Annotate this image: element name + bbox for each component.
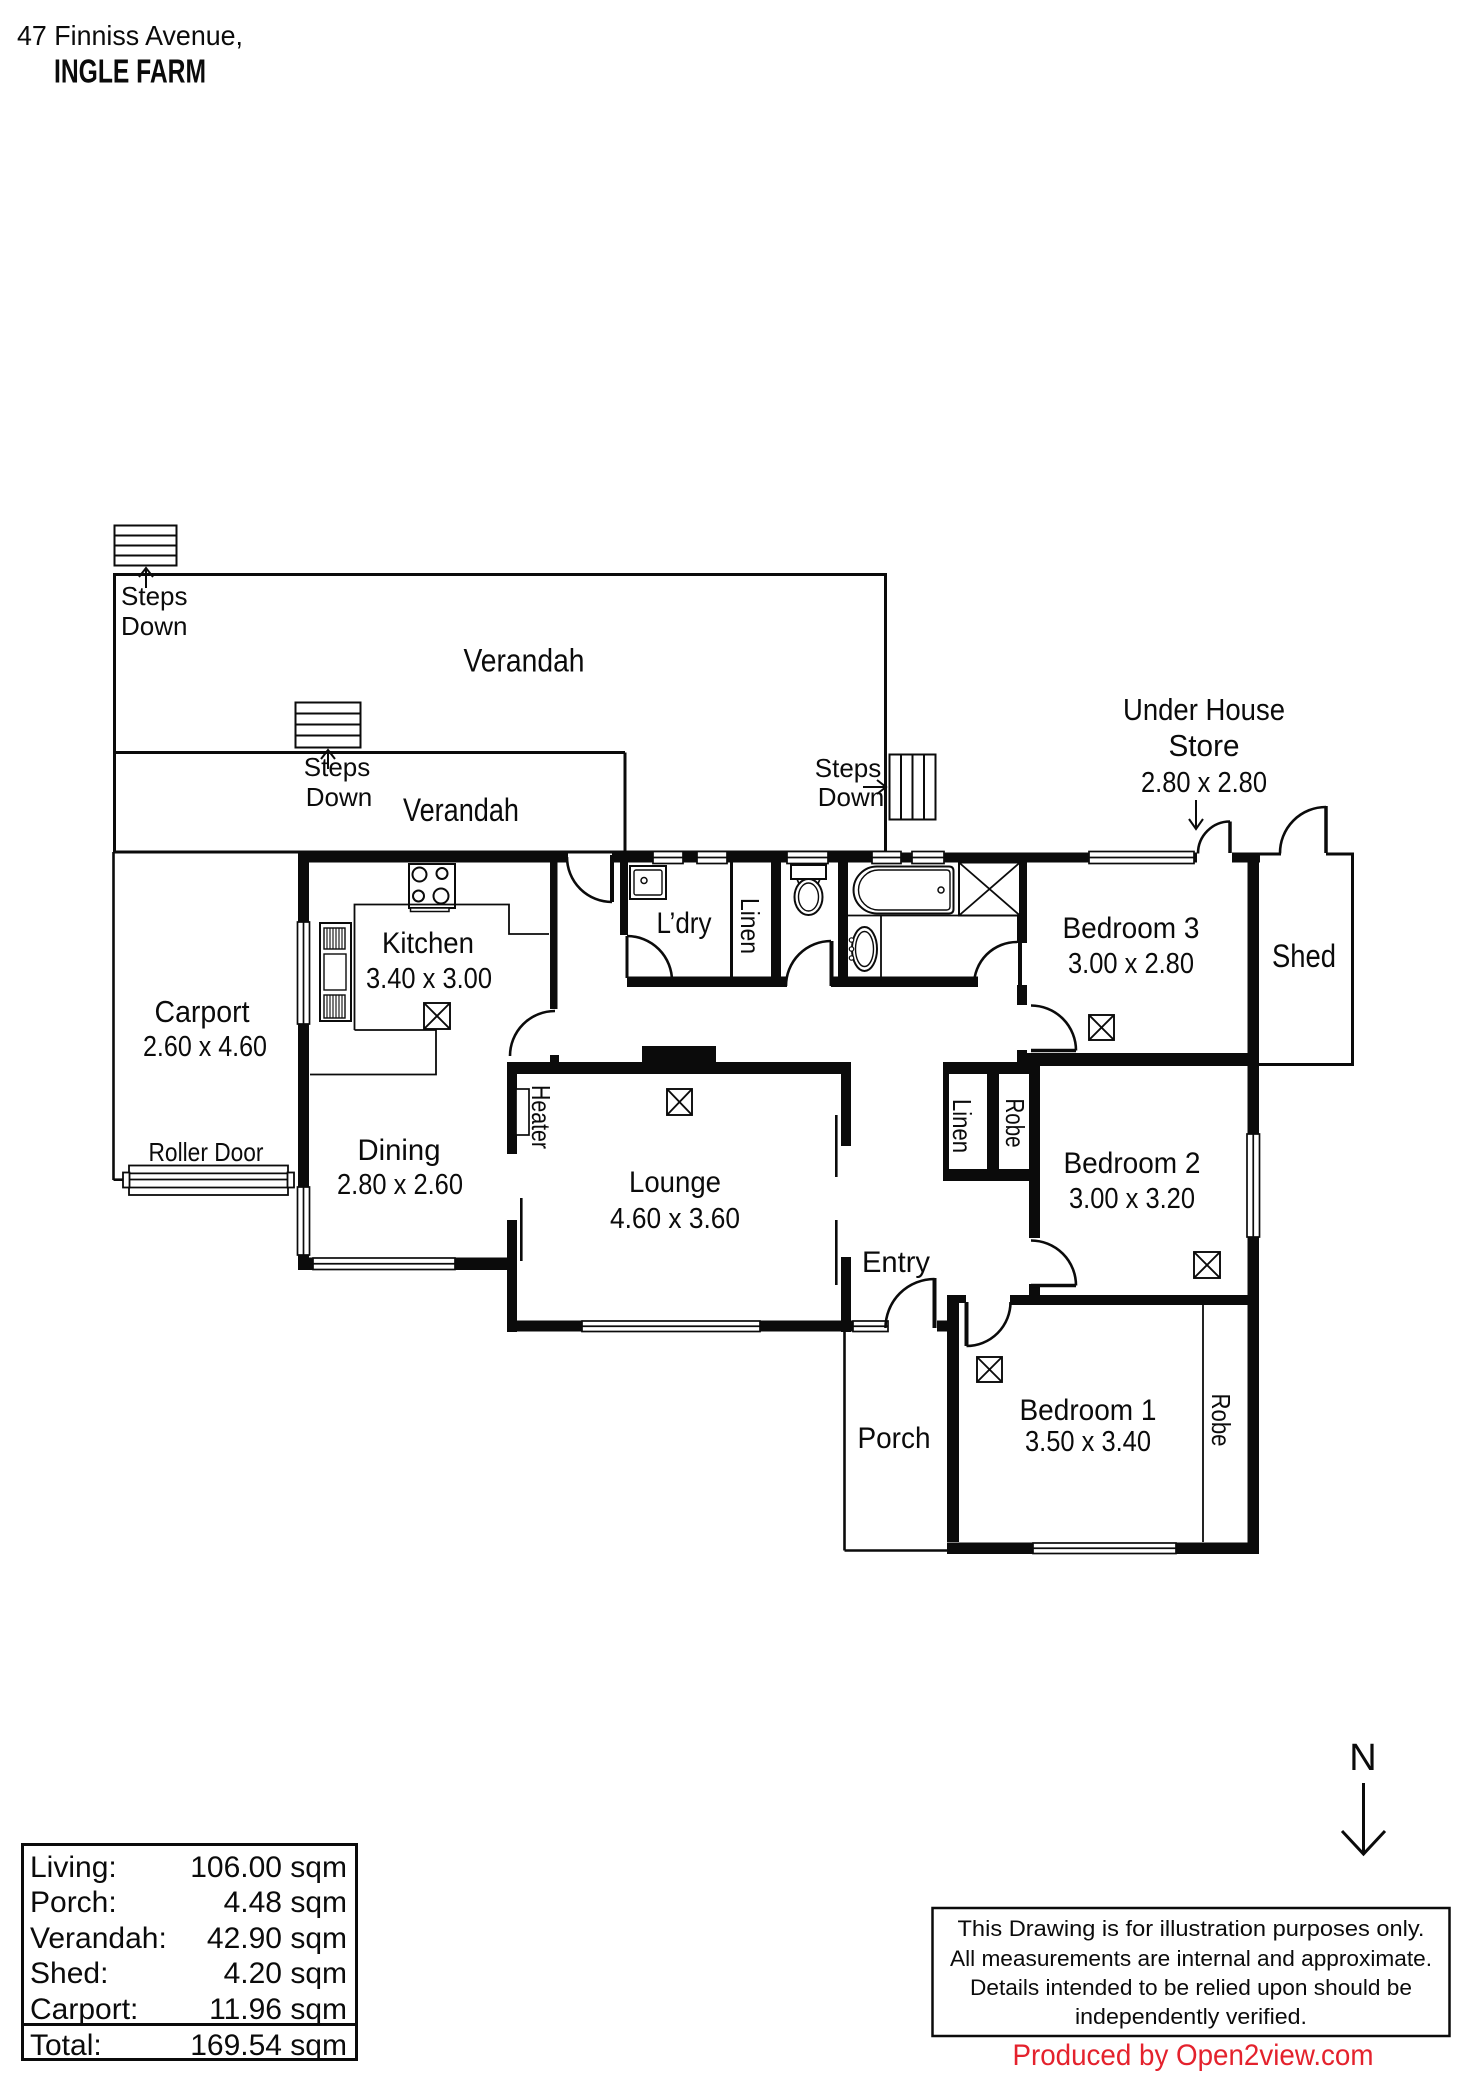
svg-text:Verandah: Verandah xyxy=(464,643,585,679)
svg-text:N: N xyxy=(1349,1737,1376,1779)
svg-text:Bedroom 1: Bedroom 1 xyxy=(1020,1394,1157,1427)
svg-text:Kitchen: Kitchen xyxy=(382,927,474,960)
svg-text:Down: Down xyxy=(306,782,372,812)
svg-text:Porch:: Porch: xyxy=(30,1886,117,1919)
svg-text:Bedroom 3: Bedroom 3 xyxy=(1063,912,1200,945)
svg-text:Details intended to be relied: Details intended to be relied upon shoul… xyxy=(970,1975,1412,2000)
svg-text:Bedroom 2: Bedroom 2 xyxy=(1064,1147,1201,1180)
svg-text:2.80 x 2.80: 2.80 x 2.80 xyxy=(1141,767,1267,799)
svg-text:106.00 sqm: 106.00 sqm xyxy=(190,1851,347,1884)
svg-text:independently verified.: independently verified. xyxy=(1075,2004,1307,2029)
svg-text:4.60 x 3.60: 4.60 x 3.60 xyxy=(610,1203,740,1235)
svg-text:169.54 sqm: 169.54 sqm xyxy=(190,2029,347,2062)
svg-text:42.90 sqm: 42.90 sqm xyxy=(207,1922,347,1955)
svg-text:This Drawing is for illustrati: This Drawing is for illustration purpose… xyxy=(958,1916,1425,1941)
svg-text:Down: Down xyxy=(121,611,187,641)
svg-text:Dining: Dining xyxy=(358,1134,441,1167)
svg-text:Linen: Linen xyxy=(735,898,765,954)
svg-text:Steps: Steps xyxy=(815,753,882,783)
svg-text:Under House: Under House xyxy=(1123,692,1285,727)
svg-text:3.40 x 3.00: 3.40 x 3.00 xyxy=(366,963,492,995)
svg-text:Steps: Steps xyxy=(121,581,188,611)
svg-text:Robe: Robe xyxy=(1000,1099,1030,1148)
svg-text:All measurements are internal: All measurements are internal and approx… xyxy=(950,1946,1432,1971)
svg-text:2.80 x 2.60: 2.80 x 2.60 xyxy=(337,1169,463,1201)
svg-text:4.48 sqm: 4.48 sqm xyxy=(224,1886,347,1919)
svg-text:Entry: Entry xyxy=(862,1246,930,1279)
svg-text:Steps: Steps xyxy=(304,752,371,782)
svg-text:Verandah: Verandah xyxy=(403,792,519,828)
svg-text:11.96 sqm: 11.96 sqm xyxy=(209,1993,347,2026)
svg-text:Produced by Open2view.com: Produced by Open2view.com xyxy=(1013,2039,1374,2072)
svg-text:L’dry: L’dry xyxy=(657,907,712,940)
svg-text:47 Finniss Avenue,: 47 Finniss Avenue, xyxy=(17,20,243,51)
svg-text:Down: Down xyxy=(818,782,884,812)
svg-text:Porch: Porch xyxy=(858,1422,931,1455)
svg-text:Total:: Total: xyxy=(30,2029,102,2062)
svg-text:4.20 sqm: 4.20 sqm xyxy=(224,1957,347,1990)
svg-text:Linen: Linen xyxy=(947,1099,977,1153)
svg-text:Shed: Shed xyxy=(1272,938,1336,974)
svg-text:Roller Door: Roller Door xyxy=(149,1137,264,1167)
svg-text:Verandah:: Verandah: xyxy=(30,1922,167,1955)
svg-text:3.00 x 3.20: 3.00 x 3.20 xyxy=(1069,1183,1195,1215)
svg-text:Shed:: Shed: xyxy=(30,1957,108,1990)
svg-text:3.00 x 2.80: 3.00 x 2.80 xyxy=(1068,948,1194,980)
svg-text:Heater: Heater xyxy=(526,1085,556,1149)
svg-text:Living:: Living: xyxy=(30,1851,117,1884)
svg-text:3.50 x 3.40: 3.50 x 3.40 xyxy=(1025,1426,1151,1458)
svg-text:Carport:: Carport: xyxy=(30,1993,138,2026)
svg-text:Lounge: Lounge xyxy=(629,1166,721,1199)
svg-text:INGLE FARM: INGLE FARM xyxy=(54,53,206,90)
svg-text:Robe: Robe xyxy=(1206,1394,1236,1447)
svg-text:Store: Store xyxy=(1169,728,1240,763)
svg-text:2.60 x 4.60: 2.60 x 4.60 xyxy=(143,1031,267,1063)
svg-text:Carport: Carport xyxy=(155,994,250,1029)
